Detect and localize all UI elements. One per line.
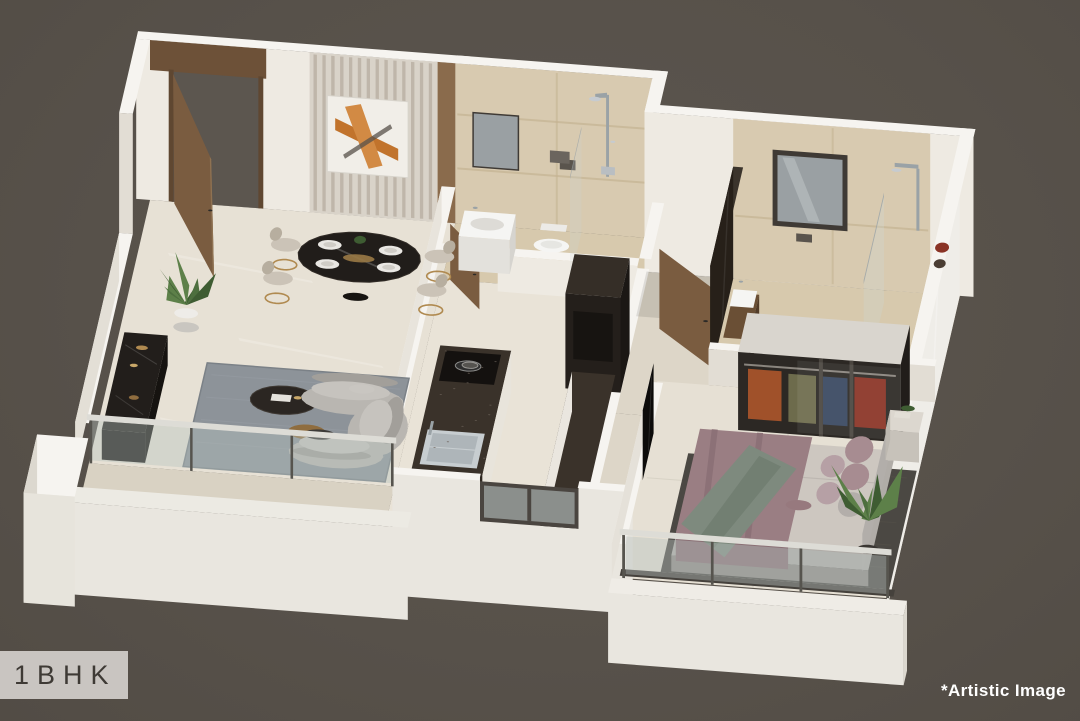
floor-plan-render: 1BHK *Artistic Image bbox=[0, 0, 1080, 721]
wash-basin-cabinet bbox=[459, 236, 510, 274]
book bbox=[894, 412, 911, 419]
slat-line bbox=[429, 63, 432, 219]
wall-outlet bbox=[796, 233, 812, 242]
wardrobe-clothes bbox=[748, 369, 782, 422]
hob-pan bbox=[462, 362, 478, 368]
entrance-jamb bbox=[169, 69, 174, 201]
tall-cabinet-top bbox=[565, 254, 629, 298]
wash-basin bbox=[730, 289, 758, 308]
railing-post bbox=[190, 425, 193, 471]
exterior-wall-face bbox=[480, 521, 579, 610]
railing-post bbox=[391, 440, 394, 486]
bedside-table-face bbox=[886, 430, 919, 463]
window-post bbox=[711, 539, 714, 585]
railing-post bbox=[90, 417, 93, 463]
slat-line bbox=[420, 63, 423, 219]
bathroom-mirror bbox=[473, 113, 518, 171]
window-post bbox=[622, 532, 625, 578]
tall-cabinet-shelf bbox=[573, 311, 612, 362]
window-post bbox=[886, 552, 889, 598]
balcony-pillar-south-face bbox=[24, 493, 75, 607]
slat-line bbox=[322, 55, 325, 211]
railing-post bbox=[291, 433, 294, 479]
shower-column bbox=[606, 95, 609, 177]
balcony-ledge-side bbox=[904, 601, 907, 686]
isometric-floor-plan bbox=[0, 0, 1080, 721]
wardrobe-glass-slider bbox=[797, 361, 900, 441]
slat-line bbox=[411, 62, 414, 218]
unit-type-badge: 1BHK bbox=[0, 651, 128, 699]
slat-line bbox=[314, 54, 317, 210]
entrance-jamb bbox=[258, 76, 263, 208]
shower-column bbox=[916, 169, 919, 231]
window-mullion bbox=[527, 489, 531, 521]
artistic-image-disclaimer: *Artistic Image bbox=[941, 681, 1066, 701]
flush-plate bbox=[550, 150, 570, 164]
unit-type-label: 1BHK bbox=[14, 660, 117, 691]
shower-mixer bbox=[601, 166, 615, 175]
window-post bbox=[800, 545, 803, 591]
wall-step-face bbox=[119, 113, 133, 234]
